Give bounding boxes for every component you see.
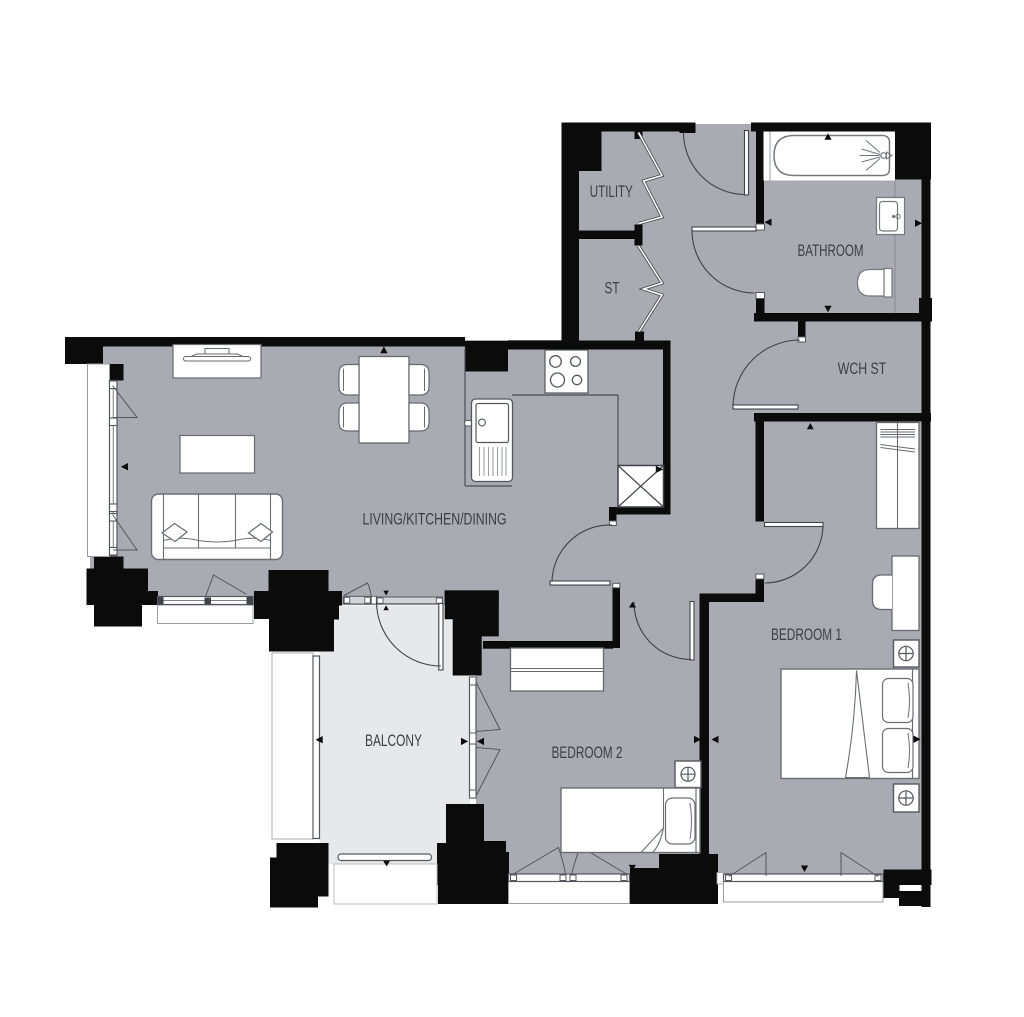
- svg-text:BALCONY: BALCONY: [365, 731, 422, 750]
- svg-text:BEDROOM 1: BEDROOM 1: [771, 625, 842, 644]
- svg-text:BEDROOM 2: BEDROOM 2: [552, 743, 623, 762]
- svg-text:ST: ST: [605, 279, 620, 298]
- svg-text:LIVING/KITCHEN/DINING: LIVING/KITCHEN/DINING: [363, 510, 507, 529]
- svg-text:BATHROOM: BATHROOM: [798, 241, 864, 260]
- svg-text:UTILITY: UTILITY: [590, 182, 633, 201]
- svg-text:WCH ST: WCH ST: [838, 359, 887, 378]
